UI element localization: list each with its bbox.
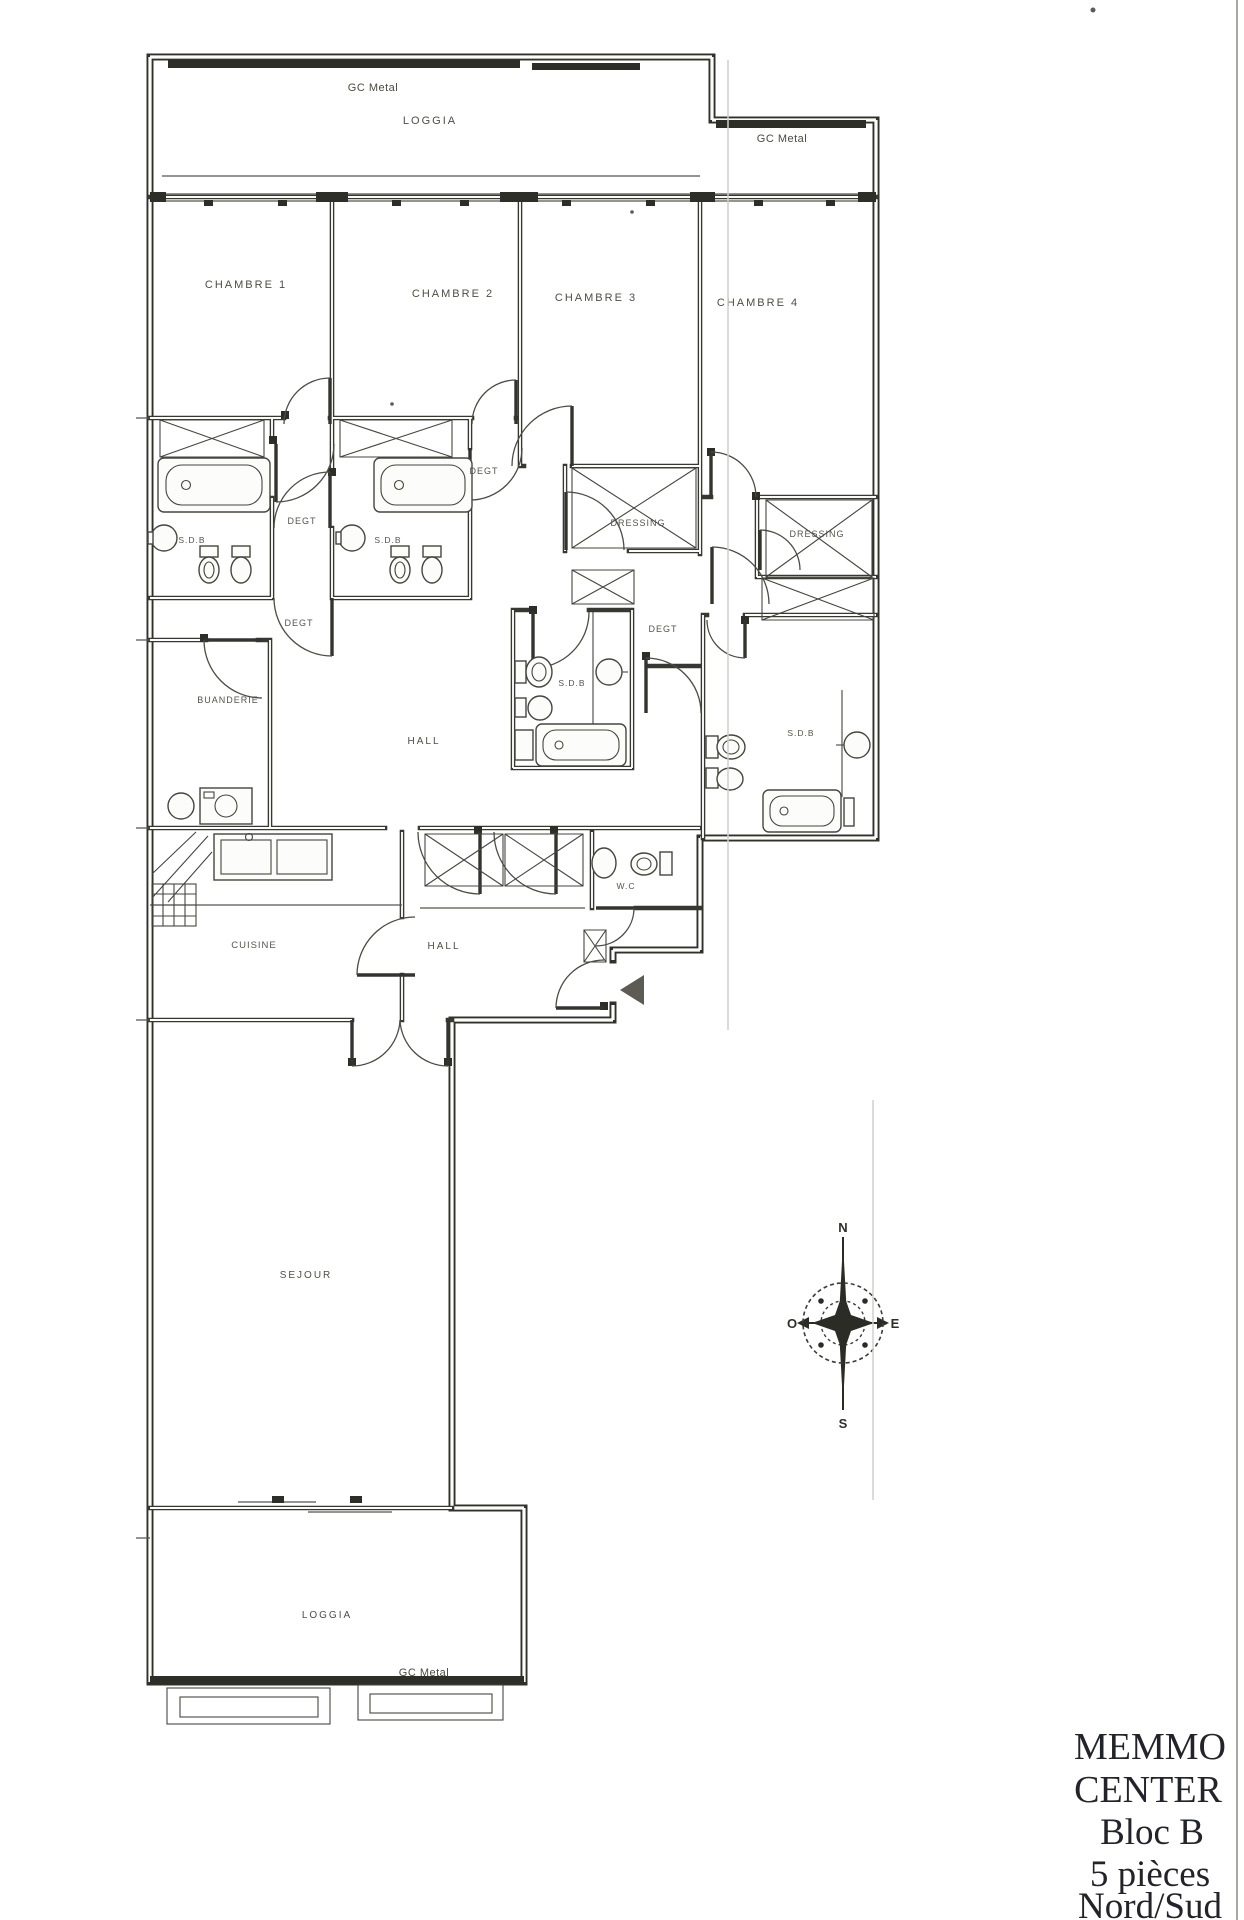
label-sdb-1: S.D.B (178, 535, 205, 545)
label-loggia-bottom: LOGGIA (302, 1610, 352, 1621)
label-degt-lower-left: DEGT (284, 618, 313, 628)
label-degt-lower-right: DEGT (648, 624, 677, 634)
title-line-3: Bloc B (1100, 1812, 1204, 1853)
label-loggia-top: LOGGIA (403, 115, 457, 127)
toilet-bidet-right (706, 735, 745, 790)
sink-bath2 (336, 525, 365, 551)
toilet-bidet-bath2 (390, 546, 442, 583)
label-gc-metal-upper-right: GC Metal (757, 133, 807, 145)
wc-fixtures (592, 848, 672, 878)
label-chambre-1: CHAMBRE 1 (205, 279, 287, 291)
compass-label-east: E (891, 1316, 900, 1331)
entrance-arrow (620, 975, 644, 1005)
scan-speck-3 (630, 210, 634, 214)
closet-x-1 (160, 420, 264, 457)
label-cuisine: CUISINE (231, 940, 277, 951)
closet-x-3 (572, 570, 634, 604)
compass-rose: N S O E (787, 1220, 900, 1431)
title-line-1: MEMMO (1074, 1726, 1226, 1768)
label-dressing-2: DRESSING (789, 529, 844, 539)
kitchen-fixtures (152, 832, 332, 926)
label-sdb-right: S.D.B (787, 728, 814, 738)
door-leaves (204, 378, 760, 1066)
label-degt-upper-left: DEGT (287, 516, 316, 526)
label-hall-upper: HALL (407, 736, 440, 747)
label-sdb-2: S.D.B (374, 535, 401, 545)
label-sejour: SEJOUR (280, 1270, 333, 1281)
scan-artifacts (390, 0, 1237, 1920)
planter-boxes (167, 1685, 503, 1724)
title-line-5: Nord/Sud (1078, 1886, 1222, 1920)
bathtub-right (763, 790, 854, 832)
label-sdb-central: S.D.B (558, 678, 585, 688)
toilet-bidet-bath1 (199, 546, 251, 583)
bathtub-central (515, 724, 626, 766)
closet-x-hall-a (425, 834, 503, 886)
compass-label-west: O (787, 1316, 797, 1331)
closet-x-2 (340, 420, 452, 457)
label-dressing-1: DRESSING (610, 518, 665, 528)
scan-speck-2 (390, 402, 394, 406)
title-line-2: CENTER (1074, 1769, 1222, 1811)
label-gc-metal-top: GC Metal (348, 82, 398, 94)
label-hall-lower: HALL (427, 941, 460, 952)
floor-plan-scan: N S O E GC Metal LOGGIA GC Metal CHAMBRE… (0, 0, 1244, 1920)
toilet-bidet-central (515, 657, 552, 720)
door-swings (204, 378, 800, 1066)
sink-right (836, 732, 870, 758)
bathtub-1 (158, 458, 270, 512)
label-gc-metal-bottom: GC Metal (399, 1667, 449, 1679)
compass-label-south: S (839, 1416, 848, 1431)
bathtub-2 (374, 458, 472, 512)
label-buanderie: BUANDERIE (197, 695, 259, 705)
scan-speck-1 (1091, 8, 1096, 13)
title-block: MEMMO CENTER Bloc B 5 pièces Nord/Sud (1074, 1726, 1226, 1920)
compass-label-north: N (838, 1220, 847, 1235)
label-chambre-2: CHAMBRE 2 (412, 288, 494, 300)
closet-x-dressing1 (572, 468, 696, 548)
counter-hatch (152, 832, 212, 902)
label-wc: W.C (616, 881, 635, 891)
door-hinges (200, 411, 760, 1066)
label-degt-upper-mid: DEGT (469, 466, 498, 476)
closet-x-hall-b (505, 834, 583, 886)
label-chambre-3: CHAMBRE 3 (555, 292, 637, 304)
laundry-fixtures (168, 788, 252, 824)
sink-central (596, 659, 628, 685)
label-chambre-4: CHAMBRE 4 (717, 297, 799, 309)
